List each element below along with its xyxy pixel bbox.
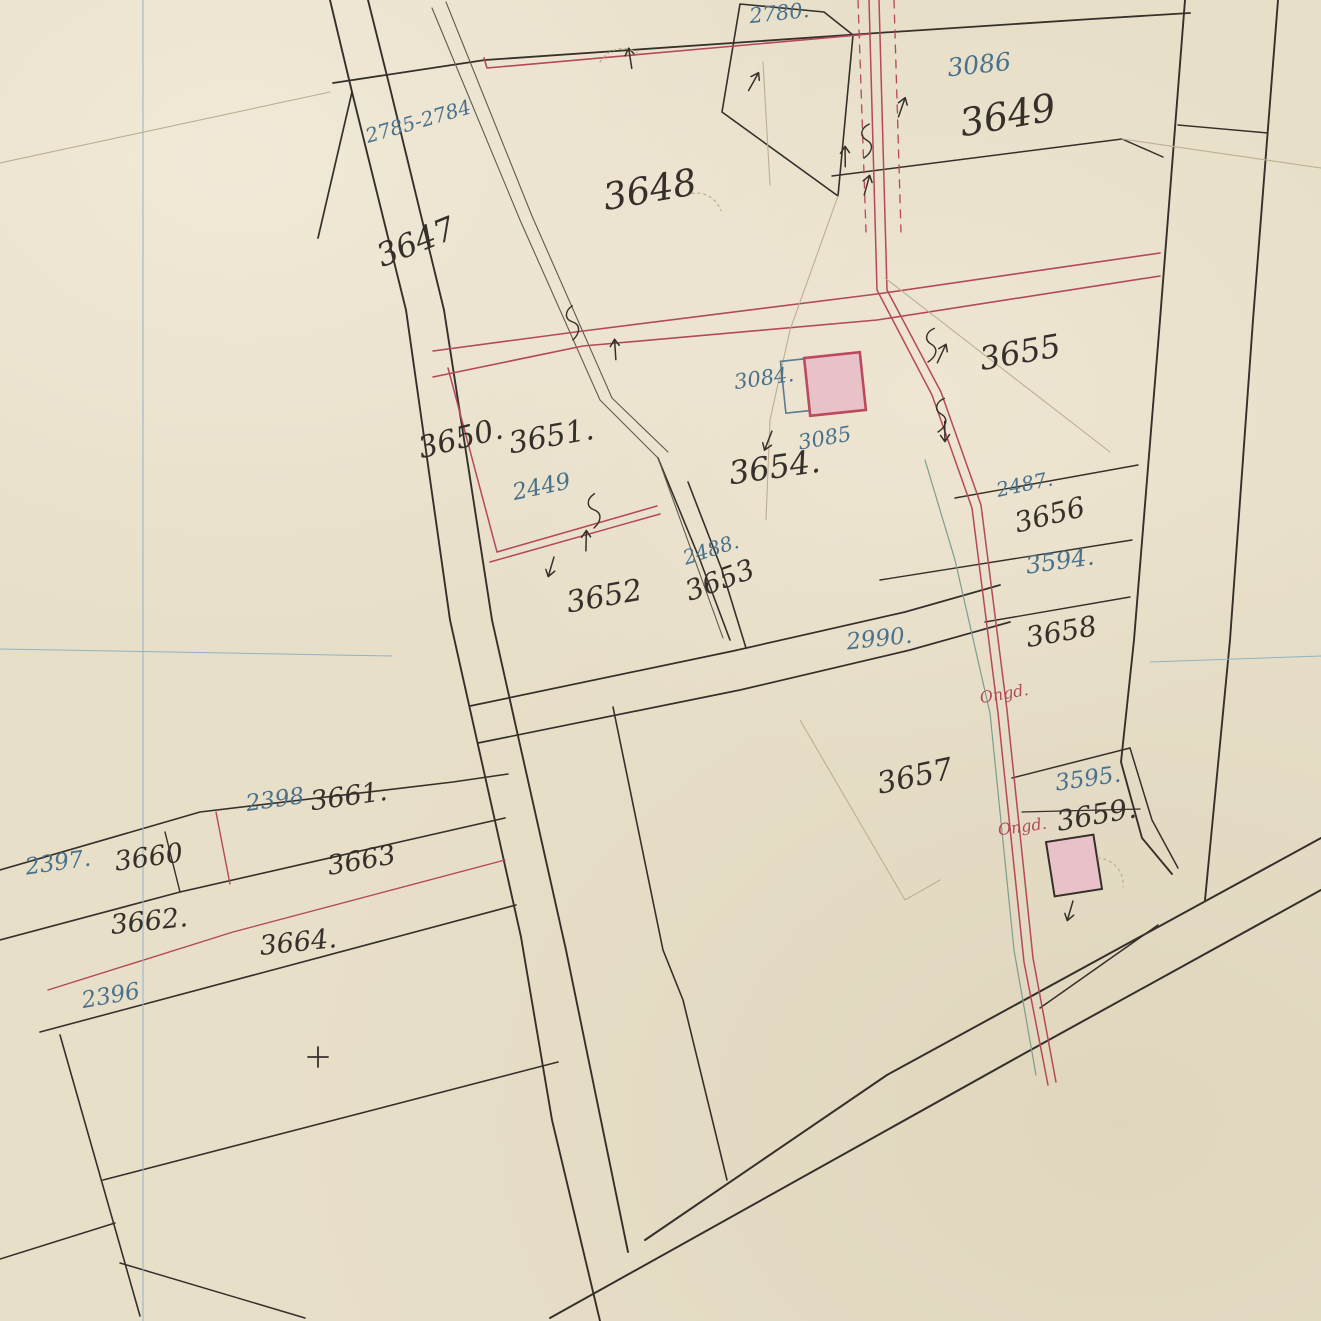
grid-blue-horizontal-east bbox=[1150, 656, 1321, 662]
building-3659 bbox=[1046, 835, 1102, 897]
corner-strip-line-a bbox=[0, 1223, 115, 1259]
parcel-label-3651: 3651. bbox=[506, 412, 597, 461]
parcel-label-27852784: 2785-2784 bbox=[362, 95, 474, 148]
red-2449-south-upper bbox=[497, 506, 657, 552]
parcel-label-2398: 2398 bbox=[243, 783, 306, 817]
east-road-connector bbox=[1178, 125, 1268, 133]
parcel-label-3084: 3084. bbox=[733, 362, 796, 394]
parcel-label-2990: 2990. bbox=[844, 623, 913, 656]
red-divider-2398 bbox=[216, 812, 230, 884]
red-top-line bbox=[484, 34, 870, 68]
ditch-red-west-line bbox=[869, 0, 1048, 1085]
block-3595-east-boundary bbox=[1130, 748, 1178, 868]
cadastral-map: 36483649364736553650.3651.3654.365236533… bbox=[0, 0, 1321, 1321]
corner-steep-boundary bbox=[60, 1035, 140, 1316]
parcel-label-3662: 3662. bbox=[109, 902, 189, 941]
parcel-label-Ongd: Ongd. bbox=[978, 680, 1030, 707]
parcel-label-3655: 3655 bbox=[977, 326, 1064, 378]
witness-tick bbox=[896, 97, 908, 118]
parcel-label-3086: 3086 bbox=[946, 47, 1012, 83]
west-spur-line bbox=[318, 92, 352, 238]
grid-blue-horizontal-west bbox=[0, 649, 392, 656]
witness-tick bbox=[747, 71, 762, 93]
cross-mark bbox=[308, 1047, 328, 1067]
cross-parcel-south-boundary bbox=[103, 1062, 558, 1180]
parcel-label-3595: 3595. bbox=[1054, 762, 1123, 797]
parcel-label-2780: 2780. bbox=[747, 0, 810, 28]
footpath-2784-east-line bbox=[446, 2, 668, 452]
red-2449-west-line bbox=[448, 368, 497, 552]
parcel-label-3663: 3663 bbox=[325, 839, 398, 881]
parcel-label-3660: 3660 bbox=[113, 837, 185, 877]
parcel-label-2396: 2396 bbox=[79, 978, 142, 1014]
parcel-label-3656: 3656 bbox=[1011, 490, 1088, 539]
road-2990-upper-edge bbox=[470, 585, 1000, 706]
parcel-label-3657: 3657 bbox=[874, 751, 957, 801]
ditch-red-east-line bbox=[879, 0, 1056, 1082]
ditch-red-dash-right bbox=[894, 0, 901, 232]
parcel-label-3649: 3649 bbox=[956, 85, 1059, 145]
corner-strip-line-b bbox=[120, 1263, 305, 1318]
witness-tick bbox=[609, 338, 623, 360]
parcel-3657-west-boundary bbox=[613, 707, 727, 1180]
west-road-left-edge bbox=[330, 0, 600, 1321]
witness-tick bbox=[935, 343, 949, 365]
parcel-label-Ongd: Ongd. bbox=[997, 814, 1048, 840]
footpath-2784-west-line bbox=[432, 8, 723, 638]
parcel-2780-outline bbox=[722, 4, 853, 196]
map-canvas: 36483649364736553650.3651.3654.365236533… bbox=[0, 0, 1321, 1321]
parcel-3649-south-boundary bbox=[832, 139, 1163, 176]
diagonal-road-lower-edge bbox=[550, 890, 1321, 1318]
parcel-label-3648: 3648 bbox=[600, 160, 700, 219]
squiggle-mark bbox=[925, 328, 938, 363]
squiggle-mark bbox=[565, 305, 580, 340]
parcel-label-3661: 3661. bbox=[308, 776, 389, 817]
pencil-2780-tail bbox=[763, 62, 770, 185]
pencil-3657-inner bbox=[800, 720, 940, 900]
pencil-topleft-diagonal bbox=[0, 92, 330, 163]
diagonal-road-upper-edge bbox=[645, 838, 1321, 1240]
building-3084 bbox=[804, 352, 866, 416]
witness-tick bbox=[1064, 900, 1075, 921]
parcel-label-3658: 3658 bbox=[1023, 609, 1099, 654]
east-road-left-edge bbox=[1121, 0, 1185, 874]
parcel-label-3594: 3594. bbox=[1024, 542, 1096, 579]
parcel-label-2487: 2487. bbox=[993, 466, 1055, 502]
parcel-label-3659: 3659. bbox=[1054, 791, 1139, 837]
pencil-topright-diagonal bbox=[1122, 139, 1321, 168]
parcel-label-3085: 3085 bbox=[796, 422, 853, 455]
east-road-right-edge bbox=[1205, 0, 1278, 900]
dotted-arc bbox=[599, 46, 638, 62]
red-2449-south-lower bbox=[490, 514, 660, 562]
witness-tick bbox=[545, 556, 556, 577]
block-3661-south-boundary bbox=[0, 818, 505, 940]
parcel-label-2449: 2449 bbox=[509, 468, 573, 506]
parcel-label-3652: 3652 bbox=[564, 573, 645, 621]
west-road-right-edge bbox=[368, 0, 628, 1252]
parcel-3659-south-boundary bbox=[1040, 925, 1158, 1008]
parcel-label-2397: 2397. bbox=[23, 846, 93, 881]
dotted-arc bbox=[1098, 852, 1128, 889]
parcel-label-3647: 3647 bbox=[371, 209, 461, 275]
